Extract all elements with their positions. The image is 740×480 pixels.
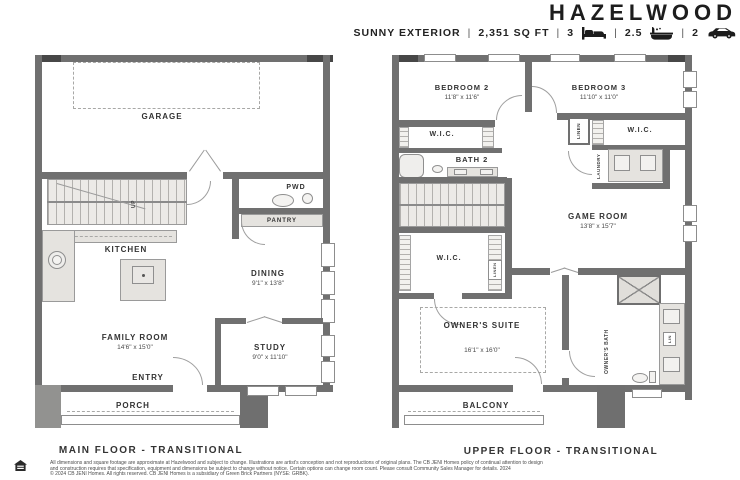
cabinet-label-lin: LIN	[667, 334, 672, 345]
window	[550, 54, 580, 62]
divider: |	[557, 27, 561, 39]
balcony-rail	[404, 415, 544, 425]
door-arc	[569, 351, 595, 377]
window	[424, 54, 456, 62]
door-arc	[173, 357, 203, 385]
room-label-bath2: BATH 2	[437, 155, 507, 164]
room-label-kitchen: KITCHEN	[81, 245, 171, 254]
window	[683, 71, 697, 88]
room-dims-game-room: 13'8" x 15'7"	[550, 223, 646, 230]
room-label-wic: W.I.C.	[404, 131, 480, 138]
wall	[392, 227, 512, 233]
room-dims-dining: 9'1" x 13'8"	[223, 280, 313, 287]
sink	[663, 309, 680, 324]
window	[614, 54, 646, 62]
room-label-laundry: LAUNDRY	[596, 148, 601, 184]
garage-count: 2	[692, 27, 699, 39]
wall	[396, 55, 418, 62]
window	[321, 299, 335, 323]
wall	[42, 172, 323, 179]
balcony-pillar	[597, 385, 625, 428]
wall	[392, 148, 502, 153]
sqft-value: 2,351 SQ FT	[478, 27, 549, 39]
closet-label-linen: LINEN	[492, 262, 497, 278]
wall	[525, 62, 532, 112]
car-icon	[706, 26, 736, 39]
dryer	[640, 155, 656, 171]
equal-housing-icon	[14, 460, 27, 471]
room-label-wic: W.I.C.	[602, 127, 678, 134]
closet-rail	[482, 127, 494, 148]
wall	[505, 178, 512, 299]
wall	[232, 179, 239, 239]
page-title: HAZELWOOD	[549, 0, 737, 26]
closet-rail	[399, 235, 411, 291]
island-faucet	[142, 274, 145, 277]
window	[683, 91, 697, 108]
room-label-garage: GARAGE	[117, 112, 207, 121]
closet-label-linen: LINEN	[576, 121, 581, 141]
wall	[604, 268, 692, 275]
door-opening	[562, 350, 569, 378]
exterior-label: SUNNY EXTERIOR	[353, 27, 460, 39]
stair-rail	[399, 204, 505, 206]
balcony-edge	[408, 411, 540, 412]
sink	[454, 169, 467, 175]
room-dims-owners-suite: 16'1" x 16'0"	[432, 347, 532, 354]
sink	[480, 169, 493, 175]
door-arc	[187, 181, 211, 205]
door-opening	[187, 172, 223, 179]
wall	[392, 120, 495, 127]
window	[683, 225, 697, 242]
washer	[614, 155, 630, 171]
window	[488, 54, 520, 62]
upper-floor-plan: BEDROOM 2 11'8" x 11'6" BEDROOM 3 11'10"…	[392, 55, 704, 432]
bed-icon	[581, 25, 607, 40]
door-leaf	[189, 150, 205, 172]
sink	[432, 165, 443, 173]
room-dims-study: 9'0" x 11'10"	[225, 354, 315, 361]
room-dims-family-room: 14'6" x 15'0"	[90, 344, 180, 351]
main-floor-plan: GARAGE UP PWD PANTRY KITCHEN DINING 9'1"…	[35, 55, 335, 432]
disclaimer: All dimensions and square footage are ap…	[50, 461, 738, 478]
door-opening	[173, 385, 207, 392]
room-label-owners-suite: OWNER'S SUITE	[442, 321, 522, 331]
room-label-wic: W.I.C.	[409, 255, 489, 262]
garage-parking-pad	[73, 62, 260, 109]
toilet	[272, 194, 294, 207]
linen-cabinet: LIN	[663, 332, 676, 346]
window	[632, 389, 662, 398]
stair-label: UP	[131, 195, 137, 213]
window	[321, 335, 335, 357]
room-label-bedroom2: BEDROOM 2	[417, 83, 507, 92]
room-dims-bedroom3: 11'10" x 11'0"	[554, 94, 644, 101]
sink	[663, 357, 680, 372]
porch-edge	[67, 411, 234, 412]
wall	[592, 183, 670, 189]
bath-count: 2.5	[625, 27, 643, 39]
main-floor-caption: MAIN FLOOR - TRANSITIONAL	[51, 445, 251, 456]
door-opening	[513, 385, 543, 392]
divider: |	[614, 27, 618, 39]
shower	[617, 275, 661, 305]
bathtub	[399, 154, 424, 178]
window	[247, 386, 279, 396]
porch-pillar	[35, 385, 61, 428]
room-label-family-room: FAMILY ROOM	[90, 333, 180, 342]
toilet	[632, 373, 648, 383]
bath-icon	[649, 26, 674, 40]
room-dims-bedroom2: 11'8" x 11'6"	[417, 94, 507, 101]
linen-closet: LINEN	[568, 117, 590, 145]
bed-count: 3	[567, 27, 574, 39]
divider: |	[681, 27, 685, 39]
wall	[35, 55, 42, 392]
room-label-study: STUDY	[225, 343, 315, 352]
room-label-bedroom3: BEDROOM 3	[554, 83, 644, 92]
wall	[215, 318, 221, 385]
wall	[392, 55, 399, 428]
door-leaf	[205, 150, 221, 172]
porch-rail	[61, 415, 240, 425]
window	[321, 271, 335, 295]
room-label-dining: DINING	[223, 269, 313, 278]
cooktop-burner	[52, 255, 62, 265]
window	[683, 205, 697, 222]
toilet-tank	[649, 371, 656, 383]
window	[321, 361, 335, 383]
room-label-porch: PORCH	[90, 401, 176, 410]
disclaimer-line: © 2024 CB JENI Homes. All rights reserve…	[50, 472, 738, 478]
counter-line	[65, 236, 172, 237]
floorplan-sheet: { "header": { "title": "HAZELWOOD", "ext…	[0, 0, 740, 480]
wall	[35, 55, 333, 62]
upper-floor-caption: UPPER FLOOR - TRANSITIONAL	[436, 446, 686, 457]
divider: |	[468, 27, 472, 39]
room-label-entry: ENTRY	[115, 373, 181, 382]
window	[321, 243, 335, 267]
door-arc	[241, 221, 265, 245]
wall	[663, 145, 670, 185]
room-label-owners-bath: OWNER'S BATH	[604, 323, 610, 381]
linen-closet: LINEN	[488, 260, 502, 280]
room-label-game-room: GAME ROOM	[550, 212, 646, 221]
room-label-balcony: BALCONY	[436, 401, 536, 410]
sink	[302, 193, 313, 204]
spec-bar: SUNNY EXTERIOR | 2,351 SQ FT | 3 | 2.5 |…	[353, 25, 736, 40]
door-arc	[568, 151, 592, 175]
window	[285, 386, 317, 396]
room-label-pwd: PWD	[261, 184, 331, 191]
